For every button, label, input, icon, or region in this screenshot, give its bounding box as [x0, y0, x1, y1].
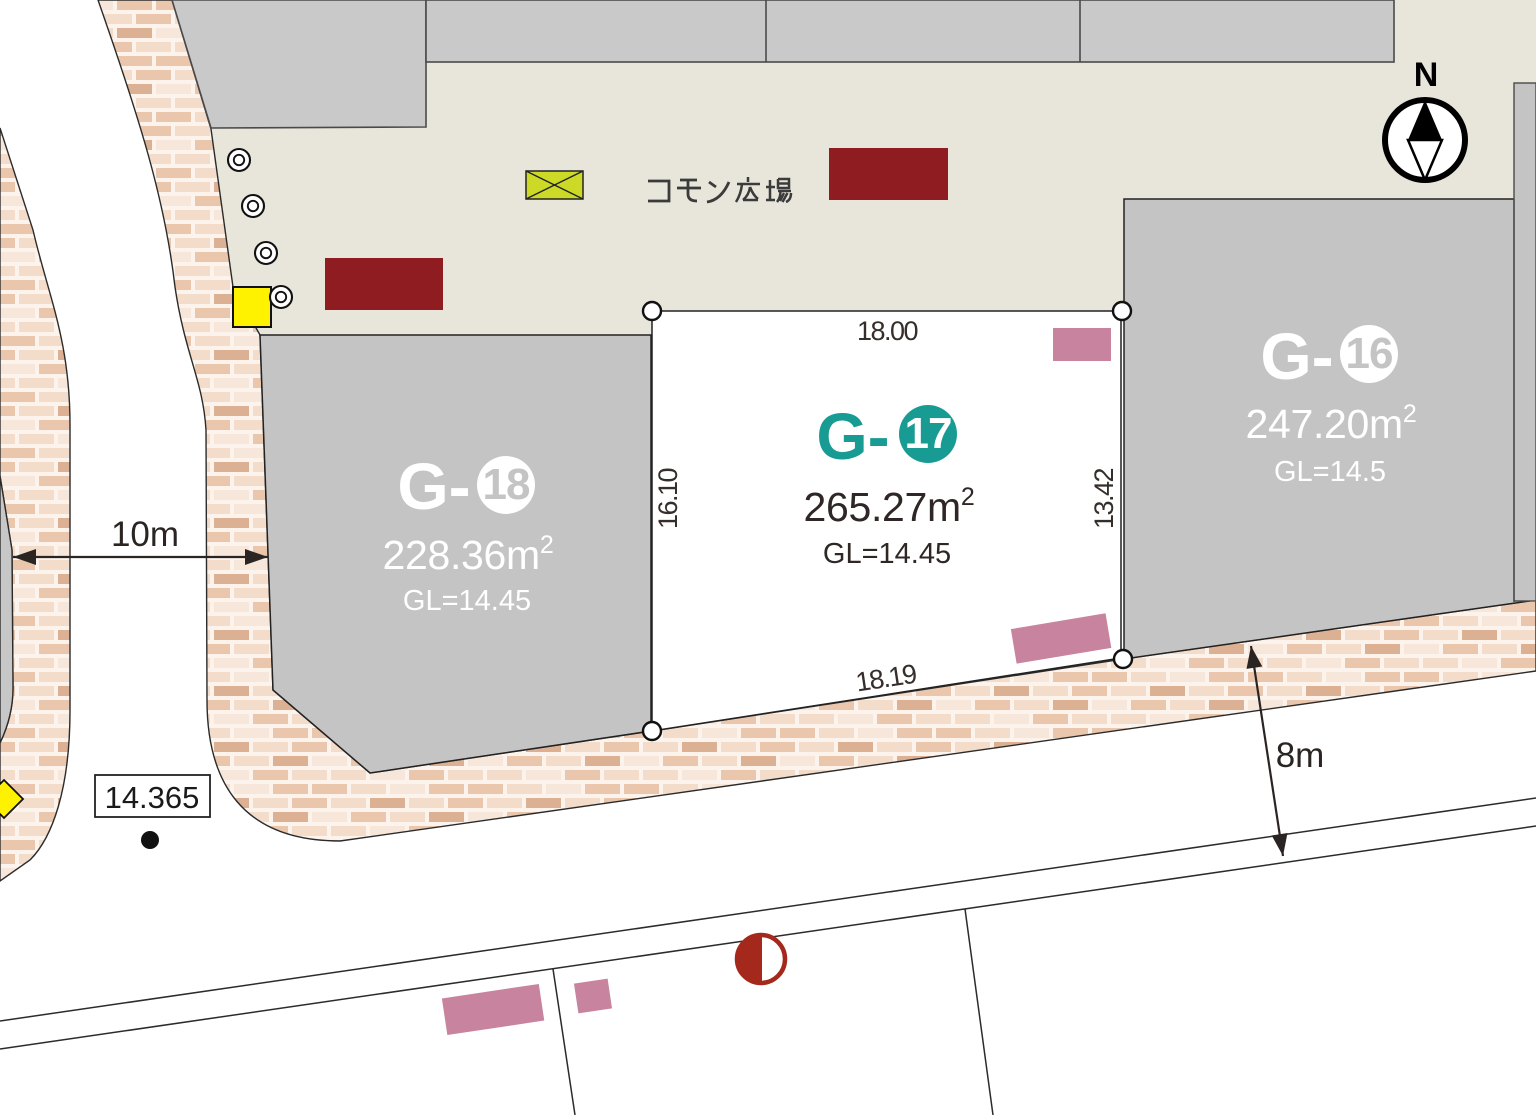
svg-text:13.42: 13.42 — [1089, 468, 1119, 529]
svg-text:18.00: 18.00 — [857, 316, 918, 346]
svg-text:14.365: 14.365 — [105, 780, 200, 815]
svg-text:247.20m2: 247.20m2 — [1245, 400, 1416, 447]
svg-text:G-: G- — [1260, 319, 1333, 393]
svg-text:N: N — [1414, 56, 1439, 94]
svg-text:16.10: 16.10 — [653, 468, 683, 529]
svg-text:265.27m2: 265.27m2 — [803, 483, 974, 530]
svg-text:GL=14.45: GL=14.45 — [403, 585, 531, 617]
svg-text:18: 18 — [483, 460, 530, 509]
svg-text:10m: 10m — [111, 515, 179, 554]
svg-text:G-: G- — [816, 399, 889, 473]
svg-text:16: 16 — [1346, 329, 1393, 378]
svg-text:228.36m2: 228.36m2 — [382, 531, 553, 578]
svg-text:GL=14.5: GL=14.5 — [1274, 456, 1386, 488]
svg-text:G-: G- — [397, 449, 470, 523]
svg-text:17: 17 — [905, 409, 952, 458]
svg-text:8m: 8m — [1276, 736, 1325, 775]
svg-text:GL=14.45: GL=14.45 — [823, 538, 951, 570]
